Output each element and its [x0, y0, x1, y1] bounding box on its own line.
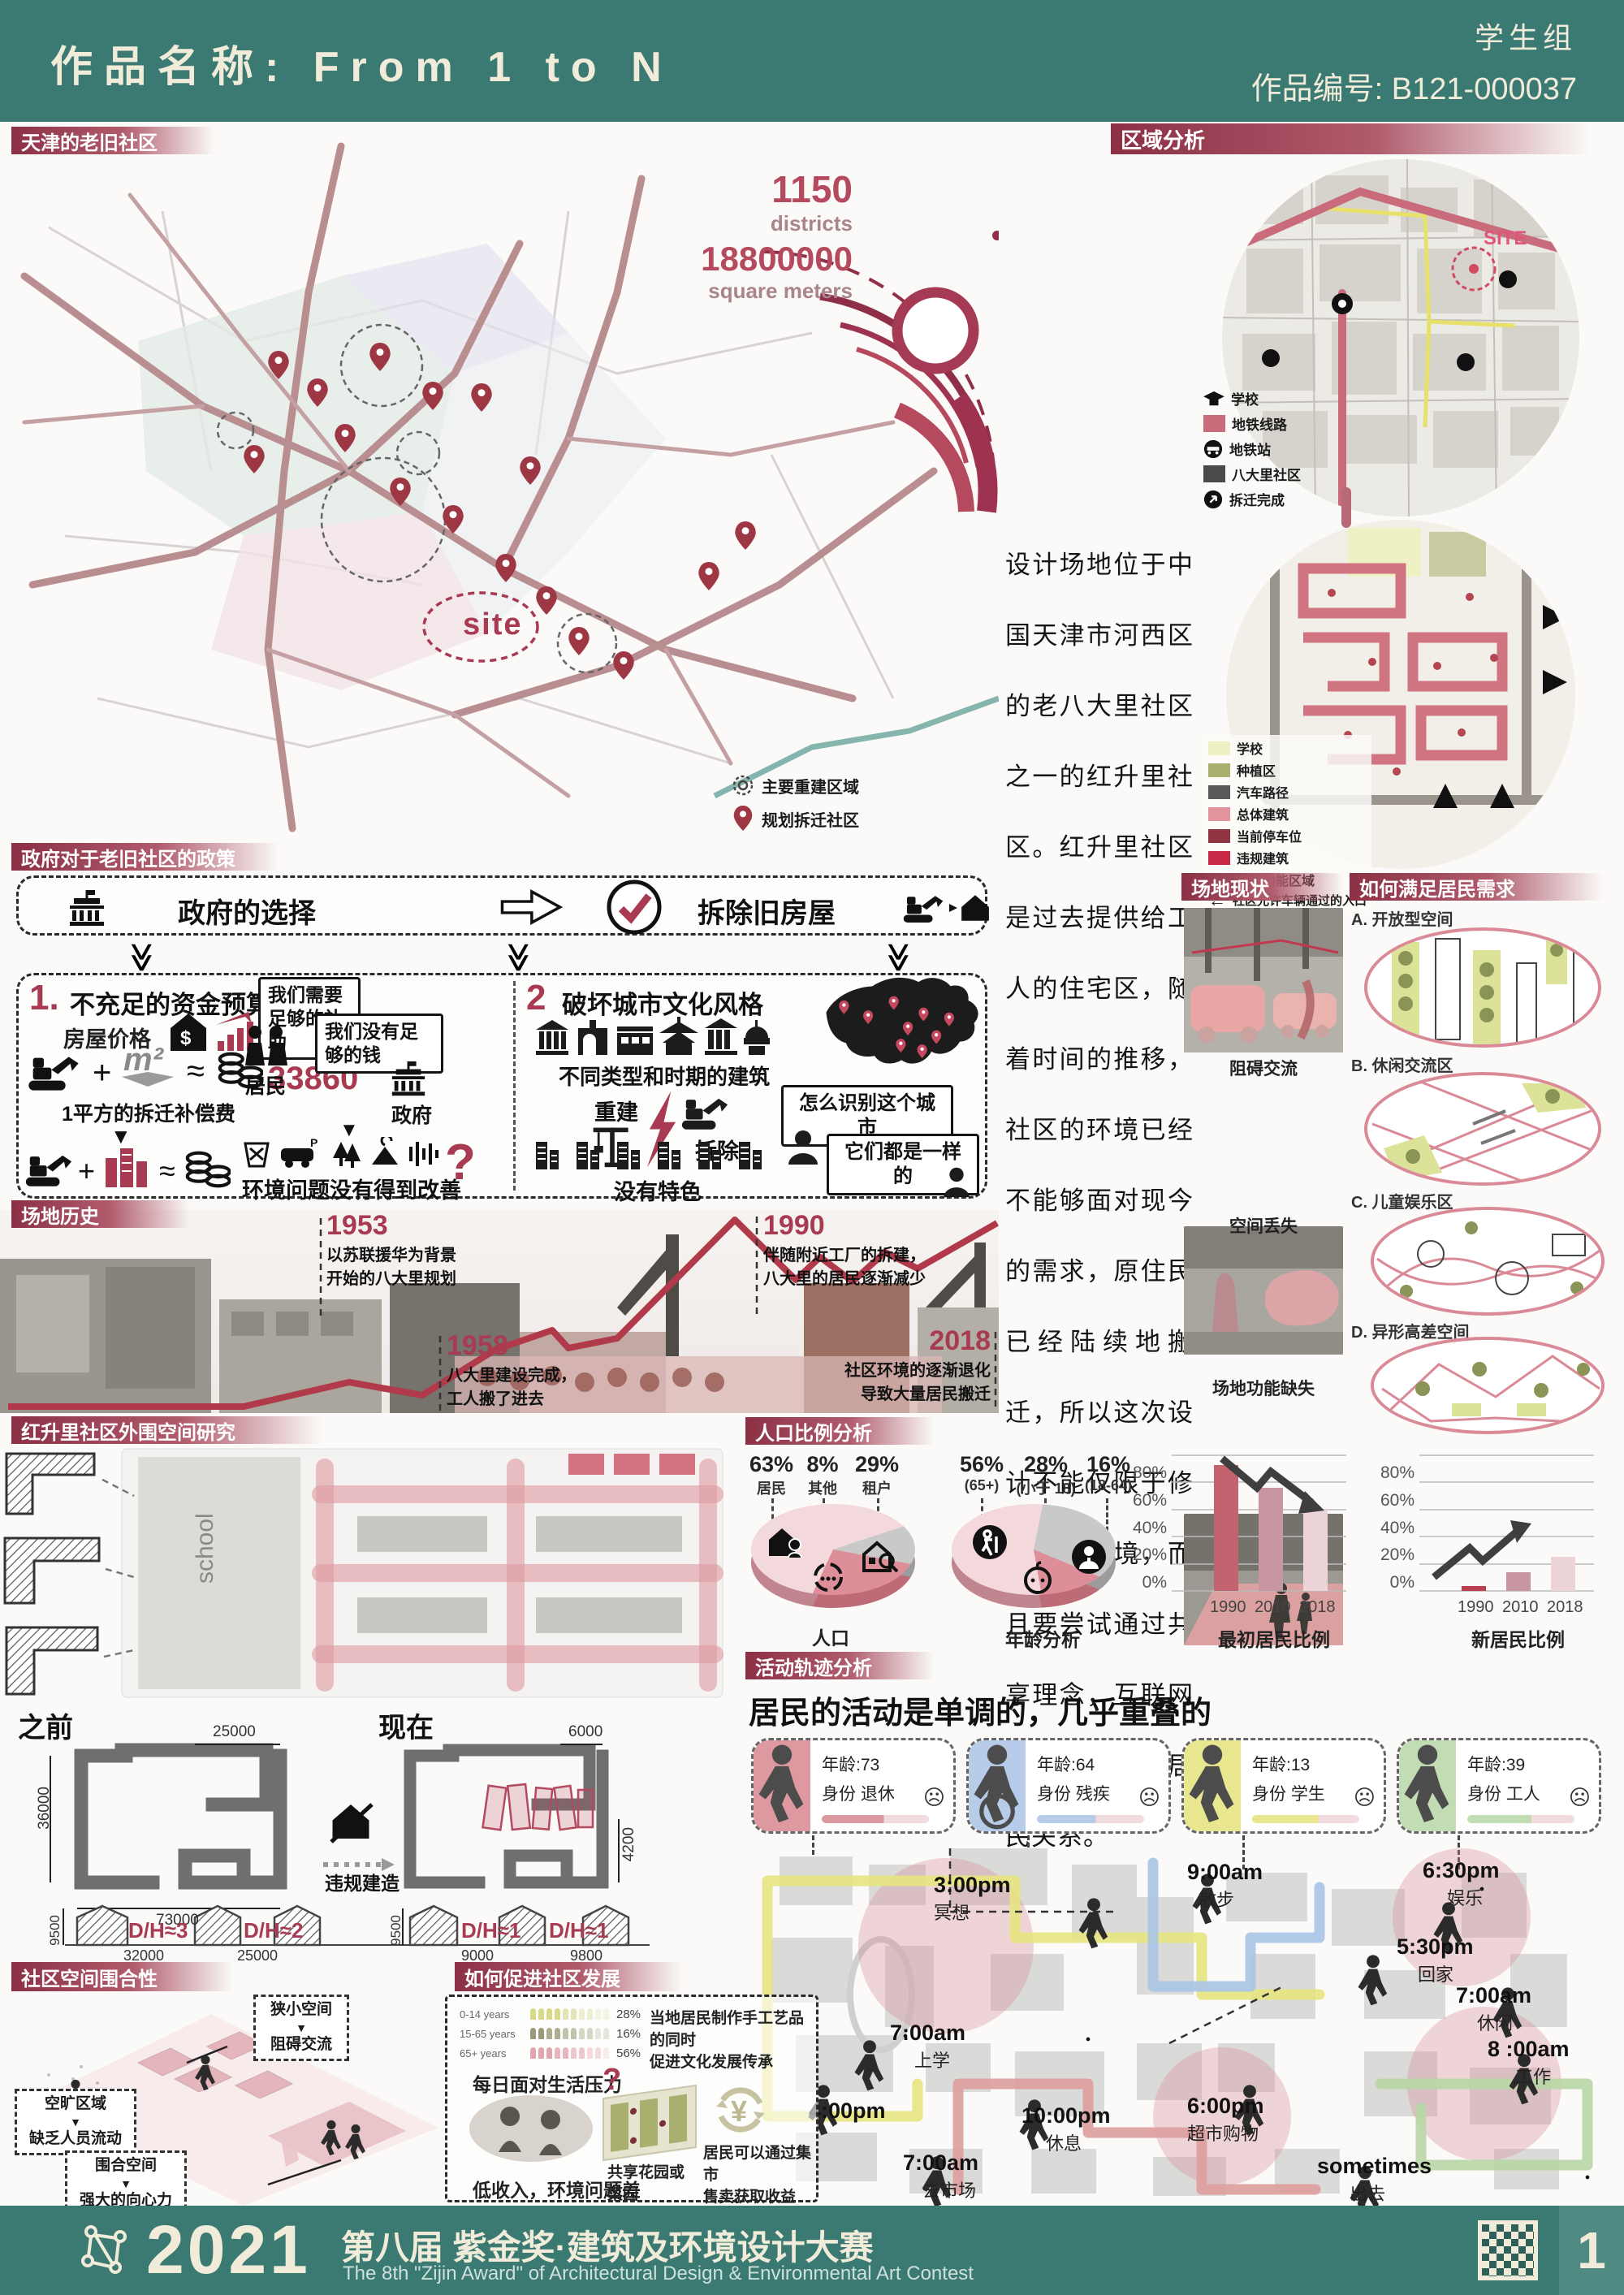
dim-25000-sec: 25000: [237, 1947, 278, 1964]
picto-label: 0-14 years: [460, 2008, 528, 2021]
question-mark: ?: [603, 2063, 621, 2098]
axis1-80: 80%: [1125, 1463, 1167, 1483]
group-label: 学生组: [1090, 15, 1577, 57]
no-feature-note: 没有特色: [614, 1174, 702, 1206]
enclosure-cause: 围合空间: [69, 2156, 183, 2176]
excavator-house-icons: [902, 889, 991, 927]
china-map: [812, 973, 983, 1077]
picto-pct: 16%: [616, 2027, 641, 2041]
metro-station-icon: [1203, 439, 1223, 459]
persona-card-worker: 年龄:39身份 工人无聊☹: [1397, 1738, 1601, 1834]
pie1-slice2-label: 29%租户: [853, 1452, 901, 1498]
persona-card-student: 年龄:13身份 学生无聊☹: [1181, 1738, 1386, 1834]
stat-districts-value: 1150: [682, 167, 853, 211]
picto-label: 65+ years: [460, 2047, 528, 2059]
metro-line-chip: [1203, 415, 1225, 432]
dim-9500-before: 9500: [47, 1915, 63, 1946]
rebuild-area-icon: [731, 773, 755, 797]
bar1-year-2010: 2010: [1255, 1598, 1291, 1617]
axis1-40: 40%: [1125, 1519, 1167, 1538]
persona-age: 年龄:39: [1467, 1752, 1591, 1776]
dim-4200: 4200: [620, 1827, 638, 1861]
market-note-2: 售卖获取收益: [703, 2185, 814, 2206]
picto-pct: 28%: [616, 2008, 641, 2021]
axis1-20: 20%: [1125, 1545, 1167, 1565]
event-gohome: 5:30pm回家: [1397, 1934, 1474, 1986]
market-note-1: 居民可以通过集市: [703, 2141, 814, 2185]
need-d-plan: [1371, 1337, 1605, 1434]
map-legend-rebuild: 主要重建区域: [762, 774, 859, 797]
demolish-label: 拆除旧房屋: [698, 891, 836, 931]
dim-6000: 6000: [568, 1723, 603, 1741]
building-types-note: 不同类型和时期的建筑: [559, 1061, 770, 1091]
illegal-build-label: 违规建造: [325, 1868, 400, 1895]
persona-photo: [969, 1740, 1026, 1831]
section-policy: 政府对于老旧社区的政策: [11, 843, 279, 871]
qr-code: [1478, 2220, 1538, 2280]
compensation-note: 1平方的拆迁补偿费: [62, 1098, 235, 1127]
section-enclosure: 社区空间围合性: [11, 1962, 232, 1991]
persona-age: 年龄:73: [822, 1752, 945, 1776]
craft-note-2: 促进文化发展传承: [650, 2050, 812, 2072]
need-b-plan: [1364, 1072, 1601, 1186]
child-icon: [1020, 1561, 1056, 1597]
persona-mood: 无聊: [1252, 1826, 1359, 1834]
historic-buildings-icons: [536, 1015, 771, 1057]
hatched-buildings: [5, 1454, 99, 1694]
history-1953: 1953以苏联援华为背景开始的八大里规划: [326, 1210, 456, 1289]
legend1-station: 地铁站: [1229, 439, 1271, 459]
footer-year: 2021: [146, 2211, 311, 2289]
adult-icon: [1070, 1538, 1108, 1575]
need-b-label: B. 休闲交流区: [1351, 1052, 1453, 1076]
gov-choice-label: 政府的选择: [178, 891, 316, 931]
demolish-excavator-icon: [680, 1095, 729, 1130]
history-collage: 1953以苏联援华为背景开始的八大里规划 1990伴随附近工厂的拆建，八大里的居…: [0, 1210, 999, 1413]
yuan-cycle-icon: ¥: [710, 2079, 771, 2141]
axis2-20: 20%: [1372, 1545, 1415, 1565]
section-history: 场地历史: [11, 1200, 190, 1228]
persona-age: 年龄:64: [1037, 1752, 1160, 1776]
legend2-buildings: 总体建筑: [1237, 804, 1289, 823]
history-1990: 1990伴随附近工厂的拆建，八大里的居民逐渐减少: [763, 1210, 926, 1289]
section-demographics: 人口比例分析: [745, 1417, 934, 1445]
sad-face-icon: ☹: [923, 1785, 945, 1810]
pie1-slice1-label: 8%其他: [802, 1452, 843, 1498]
resident-icon: [767, 1525, 803, 1558]
government-icon: [66, 888, 108, 930]
pie2-slice1-label: 28%(小于 18): [1012, 1452, 1080, 1498]
problem2-number: 2: [526, 978, 546, 1018]
garden-note-1: 共享花园或菜园: [607, 2160, 698, 2204]
enclosure-box-1: 狭小空间 ▼ 阻碍交流: [253, 1995, 349, 2061]
need-c-label: C. 儿童娱乐区: [1351, 1189, 1453, 1212]
need-c-plan: [1371, 1207, 1605, 1316]
intro-paragraph: 设计场地位于中国天津市河西区的老八大里社区之一的红升里社区。红升里社区是过去提供…: [1005, 529, 1194, 1872]
person-icon: [940, 1166, 973, 1199]
site-label: site: [463, 607, 522, 642]
elderly-icon: [971, 1524, 1009, 1561]
check-circle-icon: [605, 878, 663, 936]
competition-poster: 作品名称: From 1 to N 学生组 作品编号: B121-000037 …: [0, 0, 1624, 2295]
status-photo-2: [1184, 1226, 1343, 1355]
persona-mood: 孤独: [1037, 1826, 1144, 1834]
history-1958: 1958八大里建设完成，工人搬了进去: [447, 1330, 577, 1409]
dim-36000: 36000: [36, 1787, 54, 1830]
legend2-planting: 种植区: [1237, 760, 1276, 780]
svg-text:+: +: [78, 1154, 95, 1187]
sad-face-icon: ☹: [1138, 1785, 1160, 1810]
stat-area-unit: square meters: [682, 279, 853, 304]
work-number: 作品编号: B121-000037: [1090, 63, 1577, 108]
section-site-status: 场地现状: [1181, 873, 1344, 901]
badali-chip: [1203, 465, 1225, 482]
status-caption-2: 空间丢失: [1184, 1213, 1343, 1238]
problem1-number: 1.: [29, 978, 59, 1018]
person-icon: [784, 1129, 822, 1166]
need-a-plan: [1364, 927, 1601, 1048]
government-small-icon: [388, 1061, 429, 1100]
axis1-60: 60%: [1125, 1491, 1167, 1511]
rebuild-cost-equation: + ≈: [24, 1143, 268, 1194]
mood-bar: [1467, 1815, 1574, 1823]
section-needs: 如何满足居民需求: [1350, 873, 1603, 901]
dim-9500-now: 9500: [388, 1915, 404, 1946]
sad-face-icon: ☹: [1354, 1785, 1376, 1810]
dim-25000-top: 25000: [213, 1723, 256, 1741]
chevron-down-icon: ≫: [502, 942, 536, 973]
mood-bar: [822, 1815, 929, 1823]
status-caption-3: 场地功能缺失: [1184, 1376, 1343, 1400]
relocation-pin-icon: [731, 806, 755, 832]
event-school: 7:00am上学: [890, 2021, 965, 2072]
down-triangle-icon: ▼: [69, 2176, 183, 2191]
school-icon: [1203, 390, 1224, 408]
pressure-note: 每日面对生活压力: [473, 2069, 622, 2097]
dh1-label-a: D/H≈1: [461, 1918, 521, 1943]
illegal-build-icon: [323, 1804, 395, 1871]
chevron-down-icon: ≫: [125, 942, 159, 973]
section-activity: 活动轨迹分析: [745, 1652, 934, 1679]
environment-note: 环境问题没有得到改善: [242, 1173, 461, 1204]
chip-parking: [1208, 829, 1230, 843]
event-meditate: 3:00pm冥想: [934, 1873, 1011, 1925]
axis2-60: 60%: [1372, 1491, 1415, 1511]
site-tag: SITE: [1484, 227, 1527, 249]
outer-space-plan: school: [0, 1447, 739, 1701]
enclosure-box-2: 空旷区域 ▼ 缺乏人员流动: [15, 2089, 136, 2155]
axis2-0: 0%: [1372, 1573, 1415, 1593]
metro-line-connector: [1341, 487, 1351, 528]
stat-districts-unit: districts: [682, 211, 853, 236]
pie1-title: 人口: [812, 1623, 849, 1650]
map-legend-relocation: 规划拆迁社区: [762, 807, 859, 831]
svg-text:≈: ≈: [187, 1053, 205, 1089]
status-caption-1: 阻碍交流: [1184, 1056, 1343, 1080]
event-walk: 9:00am散步: [1187, 1860, 1263, 1912]
event-supermarket: 6:00pm超市购物: [1187, 2094, 1264, 2146]
bar2-year-2018: 2018: [1547, 1598, 1583, 1617]
poster-title: 作品名称: From 1 to N: [50, 32, 673, 93]
svg-text:≈: ≈: [159, 1154, 175, 1187]
persona-age: 年龄:13: [1252, 1752, 1376, 1776]
chip-buildings: [1208, 807, 1230, 821]
craft-note-1: 当地居民制作手工艺品的同时: [650, 2006, 812, 2050]
pie2-title: 年龄分析: [1005, 1624, 1080, 1652]
axis2-80: 80%: [1372, 1463, 1415, 1483]
mood-bar: [1037, 1815, 1144, 1823]
demolished-icon: [1203, 490, 1223, 509]
yuan-symbol: ¥: [731, 2094, 747, 2128]
district-stats: 1150 districts 18800000 square meters: [682, 167, 853, 304]
bar-chart-new-residents: [1419, 1446, 1594, 1596]
section-region-analysis: 区域分析: [1111, 123, 1590, 154]
policy-divider: [513, 981, 516, 1191]
event-market: 7:00am去市场: [903, 2150, 978, 2202]
enclosure-effect: 缺乏人员流动: [19, 2129, 132, 2150]
svg-text:m²: m²: [123, 1042, 165, 1078]
generic-towers-icons: [536, 1140, 780, 1173]
zijin-seal-logo: [75, 2219, 136, 2282]
legend2-illegal: 违规建筑: [1237, 848, 1289, 867]
down-triangle-icon: ▼: [257, 2021, 345, 2035]
arrow-right-icon: [499, 884, 563, 930]
mood-bar: [1252, 1815, 1359, 1823]
policy-choice-bar: 政府的选择 拆除旧房屋: [16, 875, 987, 936]
legend2-car-path: 汽车路径: [1237, 782, 1289, 802]
sad-face-icon: ☹: [1569, 1785, 1591, 1810]
age-pictograph: 0-14 years28% 15-65 years16% 65+ years56…: [460, 2004, 641, 2063]
persona-photo: [754, 1740, 810, 1831]
axis2-40: 40%: [1372, 1519, 1415, 1538]
bar2-year-2010: 2010: [1502, 1598, 1539, 1617]
school-label: school: [192, 1513, 218, 1584]
persona-photo: [1184, 1740, 1241, 1831]
chip-illegal: [1208, 851, 1230, 865]
legend2-parking: 当前停车位: [1237, 826, 1302, 845]
residents-label: 居民: [245, 1070, 286, 1100]
stat-area-value: 18800000: [682, 240, 853, 279]
svg-text:P: P: [310, 1137, 317, 1149]
chip-school: [1208, 741, 1230, 755]
residents-icon: [240, 1025, 292, 1067]
enclosure-cause: 狭小空间: [257, 2000, 345, 2021]
stress-photo-oval: [469, 2095, 593, 2162]
picto-label: 15-65 years: [460, 2028, 528, 2040]
event-work: 8 :00am工作: [1488, 2037, 1570, 2089]
dh3-label: D/H≈3: [128, 1918, 188, 1943]
legend2-school: 学校: [1237, 738, 1263, 758]
other-icon: [812, 1561, 844, 1593]
chip-car-path: [1208, 785, 1230, 799]
persona-photo: [1399, 1740, 1456, 1831]
legend1-badali: 八大里社区: [1232, 464, 1301, 484]
event-leisure: 7:00am休闲: [1456, 1983, 1531, 2035]
picto-pct: 56%: [616, 2046, 641, 2060]
status-photo-1: [1184, 908, 1343, 1052]
persona-mood: 孤独: [822, 1826, 929, 1834]
bar1-year-2018: 2018: [1299, 1598, 1336, 1617]
pie1-slice0-label: 63%居民: [747, 1452, 796, 1498]
bar1-title: 最初居民比例: [1218, 1624, 1330, 1652]
persona-mood: 无聊: [1467, 1826, 1574, 1834]
chevron-down-icon: ≫: [882, 942, 916, 973]
need-a-label: A. 开放型空间: [1351, 906, 1453, 930]
tenant-icon: [862, 1540, 898, 1574]
legend1-metroline: 地铁线路: [1232, 413, 1287, 434]
legend1-school: 学校: [1231, 388, 1259, 408]
section-outer-space: 红升里社区外围空间研究: [11, 1416, 322, 1444]
svg-text:+: +: [93, 1055, 111, 1091]
history-2018: 2018社区环境的逐渐退化导致大量居民搬迁: [812, 1325, 991, 1404]
chip-planting: [1208, 763, 1230, 777]
enclosure-cause: 空旷区域: [19, 2094, 132, 2115]
persona-card-retired: 年龄:73身份 退休孤独☹: [751, 1738, 956, 1834]
event-rest: 10:00pm休息: [1021, 2103, 1111, 2155]
bar-chart-original-residents: [1172, 1446, 1346, 1596]
dh2-label: D/H≈2: [244, 1918, 304, 1943]
persona-card-disabled: 年龄:64身份 残疾孤独☹: [966, 1738, 1171, 1834]
region-legend-1: 学校 地铁线路 地铁站 八大里社区 拆迁完成: [1203, 388, 1301, 509]
environment-problem-icons: P: [242, 1137, 445, 1169]
dh1-label-b: D/H≈1: [549, 1918, 609, 1943]
page-number: 1: [1559, 2206, 1624, 2295]
section-development: 如何促进社区发展: [455, 1962, 682, 1991]
government-label: 政府: [391, 1100, 432, 1129]
activity-headline: 居民的活动是单调的，几乎重叠的: [749, 1688, 1212, 1732]
footer-subtitle: The 8th "Zijin Award" of Architectural D…: [343, 2263, 974, 2285]
garden-block: [603, 2085, 697, 2161]
legend1-demolished: 拆迁完成: [1229, 489, 1285, 509]
footer-bar: 2021 第八届 紫金奖·建筑及环境设计大赛 The 8th "Zijin Aw…: [0, 2206, 1624, 2295]
map-legend: 主要重建区域 规划拆迁社区: [731, 773, 859, 832]
enclosure-effect: 阻碍交流: [257, 2035, 345, 2055]
event-goout: sometimes出去: [1317, 2154, 1432, 2206]
header-bar: 作品名称: From 1 to N 学生组 作品编号: B121-000037: [0, 0, 1624, 122]
axis1-0: 0%: [1125, 1573, 1167, 1593]
bar2-year-1990: 1990: [1458, 1598, 1494, 1617]
pie2-slice0-label: 56%(65+): [955, 1452, 1009, 1494]
event-entertain: 6:30pm娱乐: [1423, 1858, 1500, 1910]
bar2-title: 新居民比例: [1471, 1624, 1565, 1652]
down-triangle-icon: ▼: [19, 2115, 132, 2129]
event-4pm: 4:00pm: [809, 2098, 886, 2124]
bar1-year-1990: 1990: [1210, 1598, 1246, 1617]
